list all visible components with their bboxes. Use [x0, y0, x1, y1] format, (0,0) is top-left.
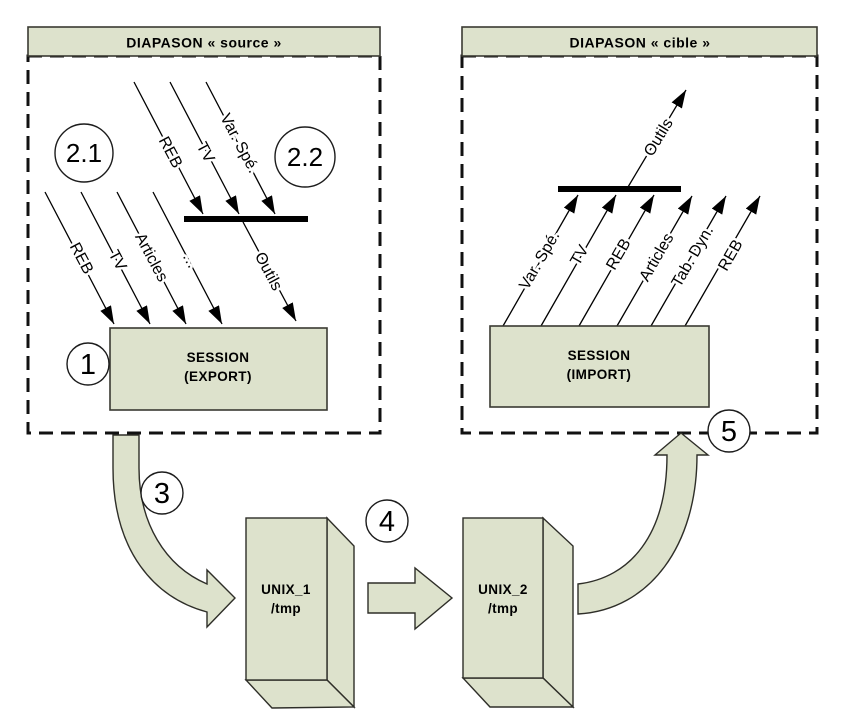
- target-panel-title: DIAPASON « cible »: [569, 34, 710, 50]
- transfer-arrow-3: [113, 435, 235, 627]
- target-label-reb: REB: [603, 236, 634, 273]
- session-import-line2: (IMPORT): [567, 367, 632, 382]
- target-label-var-spe: Var. Spé.: [516, 228, 563, 292]
- source-upper-label-reb: REB: [155, 134, 185, 171]
- target-outils-label: Outils: [641, 116, 677, 160]
- target-label-reb-2: REB: [715, 237, 746, 274]
- source-lower-label-articles: Articles: [131, 230, 171, 284]
- source-panel-title: DIAPASON « source »: [126, 34, 282, 50]
- diagram-canvas: DIAPASON « source » REB TV Var. Spé. Out…: [0, 0, 854, 726]
- target-label-tv: TV: [567, 242, 592, 268]
- target-panel: DIAPASON « cible » Var. Spé. TV REB Arti…: [462, 27, 817, 433]
- transfer-zone: 3 UNIX_1 /tmp 4 UNIX_2 /tmp 5: [113, 410, 750, 708]
- unix1-box: UNIX_1 /tmp: [246, 518, 354, 708]
- unix1-side-face: [327, 518, 354, 707]
- unix1-front-face: [246, 518, 327, 680]
- source-lower-label-tv: TV: [105, 247, 130, 273]
- source-panel: DIAPASON « source » REB TV Var. Spé. Out…: [28, 27, 380, 433]
- unix2-box: UNIX_2 /tmp: [463, 518, 573, 707]
- source-outils-label: Outils: [251, 249, 285, 293]
- target-label-tab-dyn: Tab. Dyn.: [669, 223, 718, 290]
- source-upper-label-tv: TV: [193, 139, 218, 165]
- session-export-line2: (EXPORT): [184, 369, 252, 384]
- unix2-side-face: [543, 518, 573, 707]
- unix2-front-face: [463, 518, 543, 678]
- transfer-arrow-4: [368, 568, 452, 629]
- badge-3-label: 3: [154, 478, 170, 510]
- source-lower-label-etc: …: [179, 249, 202, 271]
- source-upper-label-var-spe: Var. Spé.: [216, 111, 261, 176]
- badge-1-label: 1: [80, 349, 96, 381]
- unix2-name: UNIX_2: [478, 582, 528, 597]
- session-import-line1: SESSION: [568, 348, 631, 363]
- unix2-path: /tmp: [488, 601, 518, 616]
- diagram-page: DIAPASON « source » REB TV Var. Spé. Out…: [0, 0, 854, 726]
- badge-5-label: 5: [721, 416, 737, 448]
- session-export-line1: SESSION: [187, 350, 250, 365]
- source-lower-label-reb: REB: [66, 240, 96, 277]
- unix1-name: UNIX_1: [261, 582, 311, 597]
- transfer-arrow-5: [578, 433, 708, 614]
- badge-4-label: 4: [379, 506, 395, 538]
- badge-2-2-label: 2.2: [287, 142, 323, 172]
- badge-2-1-label: 2.1: [66, 138, 102, 168]
- unix1-path: /tmp: [271, 601, 301, 616]
